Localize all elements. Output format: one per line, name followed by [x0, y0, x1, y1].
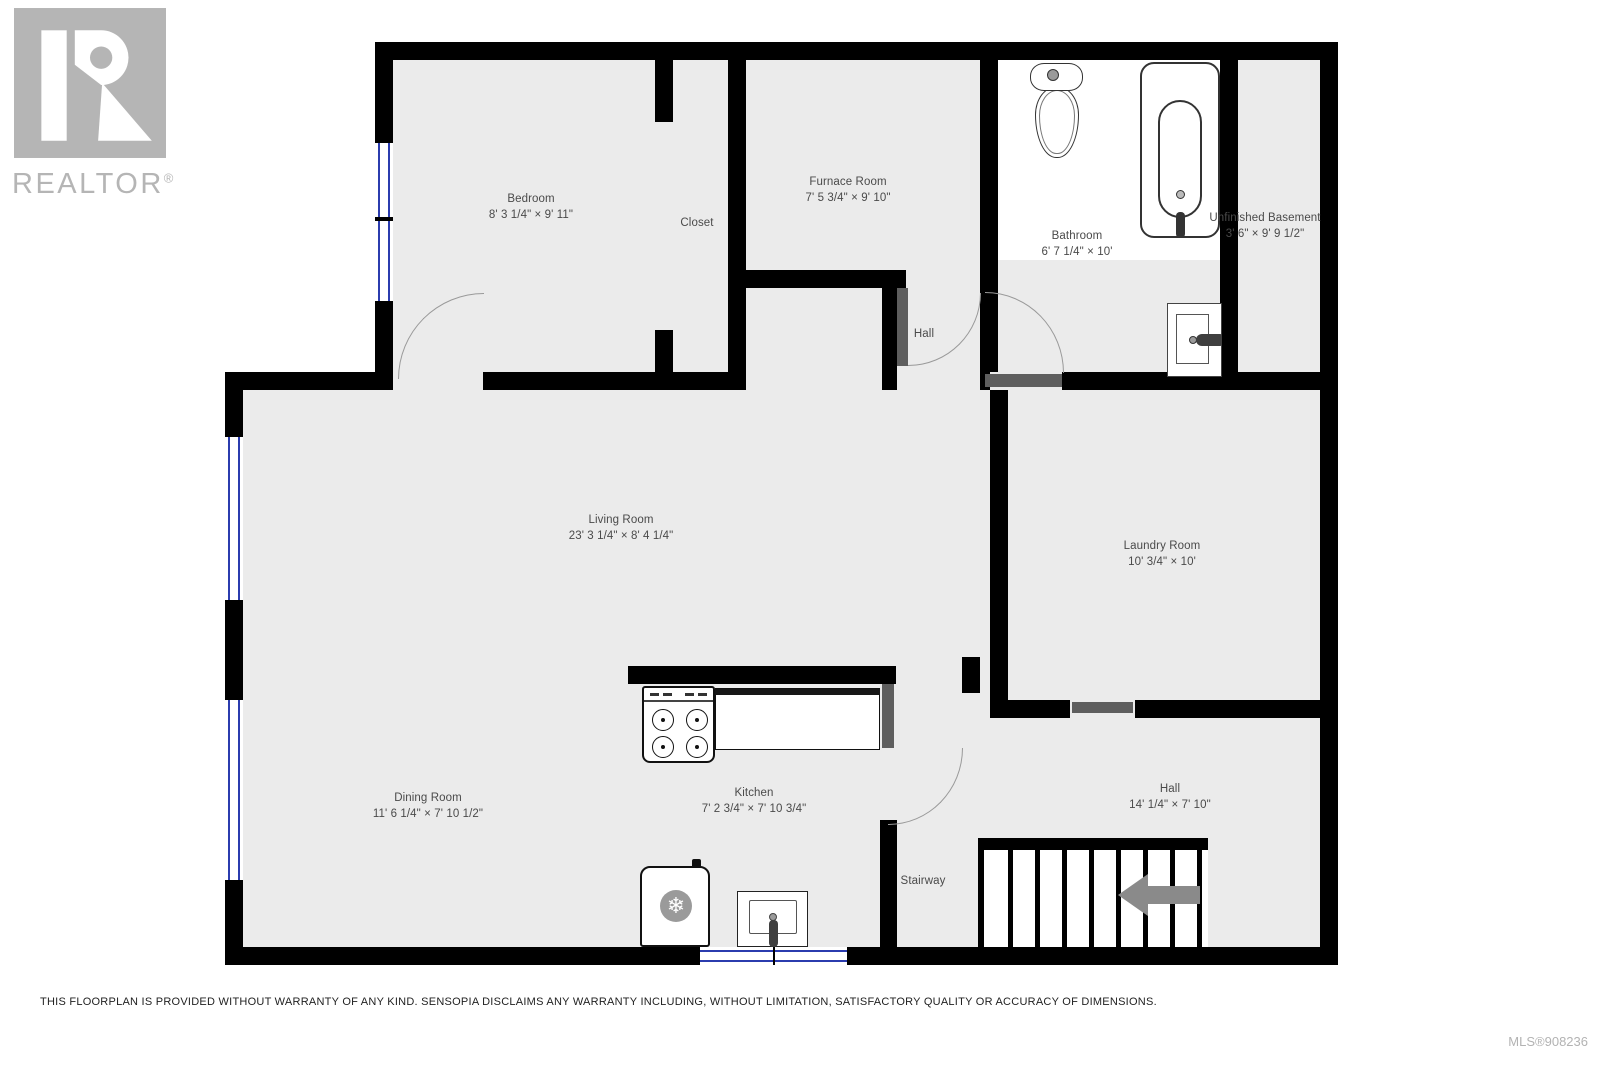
stove-knob — [685, 693, 694, 696]
room-label-hall-upper: Hall — [874, 326, 974, 342]
wall — [1320, 42, 1338, 965]
kitchen-counter-edge — [715, 689, 880, 695]
stair-tread — [1062, 850, 1067, 947]
fridge-knob — [692, 859, 701, 868]
window — [700, 947, 773, 965]
window-glass — [775, 950, 847, 962]
stove-knob — [650, 693, 659, 696]
room-label-unfinished-basement: Unfinished Basement 3' 6" × 9' 9 1/2" — [1165, 210, 1365, 242]
room-label-bedroom: Bedroom 8' 3 1/4" × 9' 11" — [431, 191, 631, 223]
disclaimer-text: THIS FLOORPLAN IS PROVIDED WITHOUT WARRA… — [40, 996, 1240, 1008]
stove-knob — [698, 693, 707, 696]
stove-control-strip — [644, 700, 713, 702]
window-glass — [378, 221, 390, 301]
stair-tread — [1008, 850, 1013, 947]
window — [375, 221, 393, 301]
realtor-logo-text: REALTOR® — [12, 168, 176, 201]
room-label-bathroom: Bathroom 6' 7 1/4" × 10' — [977, 228, 1177, 260]
burner-dot — [661, 745, 665, 749]
room-label-closet: Closet — [647, 215, 747, 231]
bathtub-drain — [1176, 190, 1185, 199]
stair-tread — [1035, 850, 1040, 947]
room-label-living-room: Living Room 23' 3 1/4" × 8' 4 1/4" — [521, 512, 721, 544]
window-glass — [228, 700, 240, 880]
kitchen-counter — [715, 688, 880, 750]
wall — [225, 372, 393, 390]
window-glass — [228, 437, 240, 600]
stair-left-wall — [978, 838, 984, 947]
stair-direction-arrow-icon — [1118, 874, 1148, 916]
door-sill — [1072, 702, 1133, 713]
window — [225, 700, 243, 880]
wall — [962, 657, 980, 693]
logo-word: REALTOR — [12, 168, 164, 200]
bathtub-basin — [1158, 100, 1202, 218]
wall — [483, 372, 746, 390]
stair-top-wall — [978, 838, 1208, 850]
wall — [375, 42, 1338, 60]
stair-tread — [1089, 850, 1094, 947]
stair-arrow-shaft — [1146, 886, 1200, 904]
room-label-kitchen: Kitchen 7' 2 3/4" × 7' 10 3/4" — [654, 785, 854, 817]
floorplan-page: REALTOR® — [0, 0, 1600, 1066]
toilet-flush-knob — [1047, 69, 1059, 81]
wall — [1135, 700, 1338, 718]
snowflake-icon: ❄ — [660, 890, 692, 922]
bathroom-faucet-icon — [1196, 334, 1222, 346]
room-label-dining-room: Dining Room 11' 6 1/4" × 7' 10 1/2" — [328, 790, 528, 822]
door-leaf — [882, 684, 894, 748]
door-sill — [985, 374, 1062, 387]
window-glass — [378, 143, 390, 217]
room-label-furnace: Furnace Room 7' 5 3/4" × 9' 10" — [748, 174, 948, 206]
room-label-laundry-room: Laundry Room 10' 3/4" × 10' — [1062, 538, 1262, 570]
wall — [655, 60, 673, 122]
window-glass — [700, 950, 773, 962]
room-label-hall-lower: Hall 14' 1/4" × 7' 10" — [1070, 781, 1270, 813]
wall — [655, 330, 673, 390]
wall — [1008, 700, 1070, 718]
window — [775, 947, 847, 965]
burner-dot — [661, 718, 665, 722]
room-label-stairway: Stairway — [863, 873, 983, 889]
stove-knob — [663, 693, 672, 696]
wall — [628, 666, 896, 684]
logo-registered-mark: ® — [164, 170, 176, 185]
burner-dot — [695, 718, 699, 722]
wall — [990, 390, 1008, 718]
window — [225, 437, 243, 600]
window — [375, 143, 393, 217]
realtor-logo-icon — [14, 8, 166, 158]
kitchen-faucet-icon — [769, 920, 778, 947]
burner-dot — [695, 745, 699, 749]
wall — [880, 820, 897, 965]
mls-number: MLS®908236 — [1508, 1034, 1588, 1049]
